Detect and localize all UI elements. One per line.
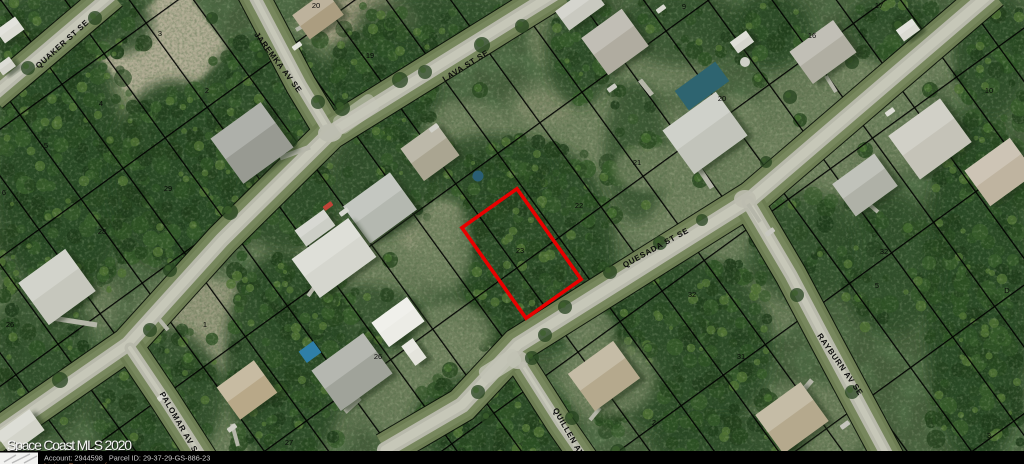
svg-text:6: 6 [2,188,6,197]
svg-text:2: 2 [652,418,656,427]
svg-text:D: D [1004,286,1010,295]
svg-text:26: 26 [374,352,382,361]
svg-text:19: 19 [366,51,374,60]
svg-text:20: 20 [718,94,726,103]
svg-text:21: 21 [633,158,641,167]
svg-text:1: 1 [203,320,207,329]
svg-text:17: 17 [875,1,883,10]
svg-text:26: 26 [6,320,14,329]
svg-text:3: 3 [158,29,162,38]
svg-text:5: 5 [875,281,879,290]
svg-text:23: 23 [516,246,524,255]
svg-text:9: 9 [682,2,686,11]
svg-text:28: 28 [98,227,106,236]
svg-text:20: 20 [312,1,320,10]
svg-text:3: 3 [987,431,991,440]
svg-text:5: 5 [44,141,48,150]
svg-text:27: 27 [285,438,293,447]
svg-text:31: 31 [737,352,745,361]
svg-text:22: 22 [575,201,583,210]
svg-text:32: 32 [880,247,888,256]
svg-text:Space Coast MLS 2020: Space Coast MLS 2020 [7,437,132,453]
svg-text:10: 10 [985,86,993,95]
svg-text:32: 32 [688,290,696,299]
svg-text:29: 29 [164,184,172,193]
svg-text:4: 4 [99,99,103,108]
svg-text:16: 16 [808,31,816,40]
svg-text:2: 2 [205,86,209,95]
